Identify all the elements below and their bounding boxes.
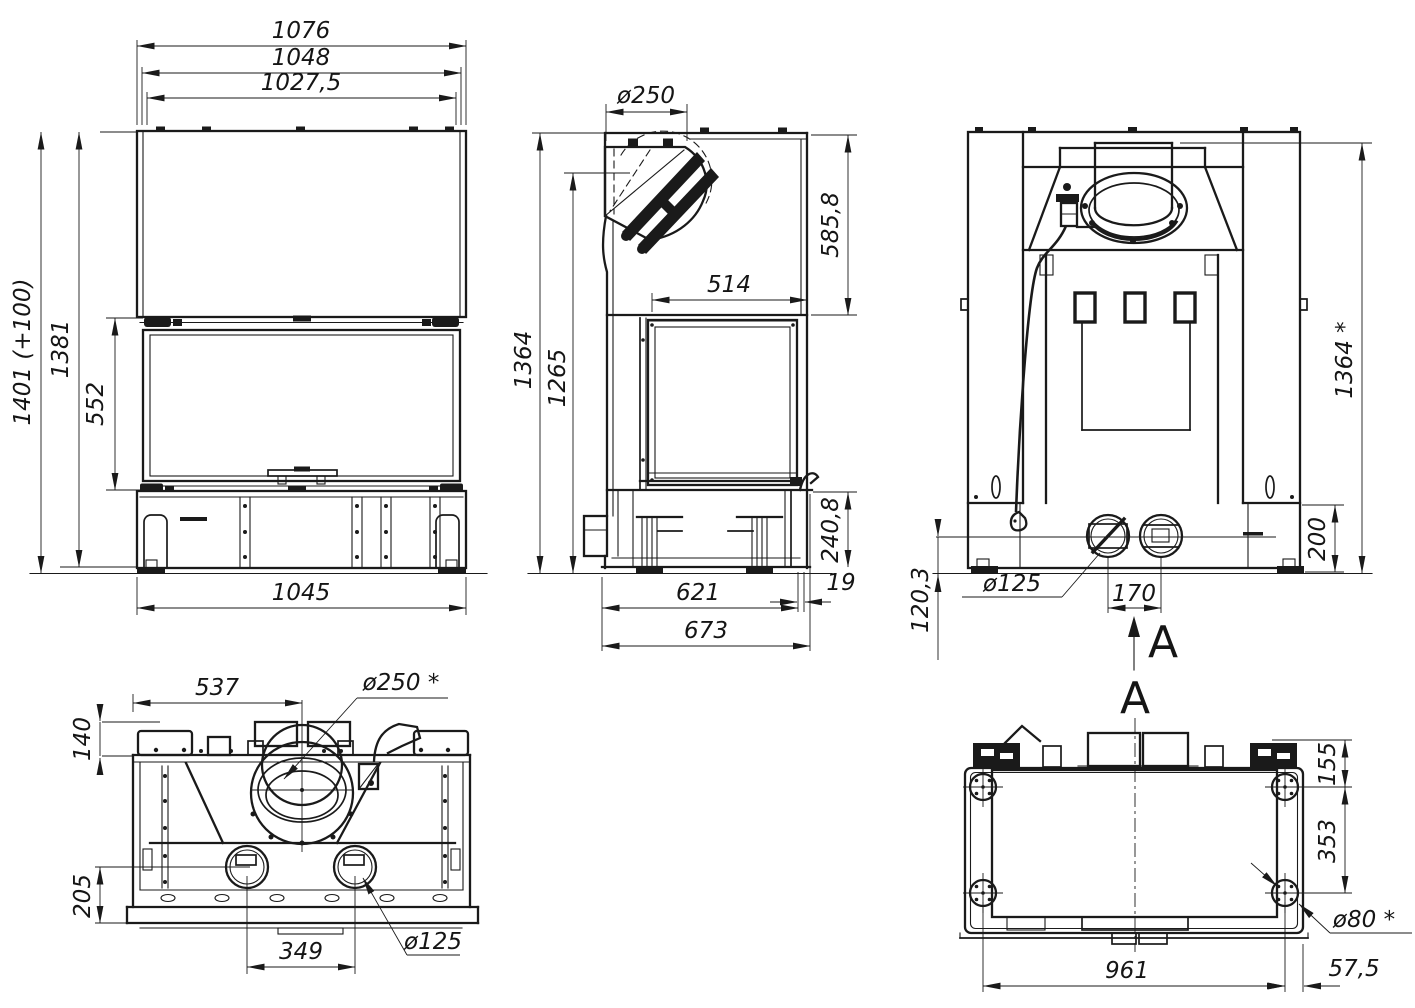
front-base (137, 491, 466, 573)
dim-side-hood-height: 585,8 (818, 192, 844, 258)
top-inner-structure (143, 763, 460, 888)
rear-inner-structure (1040, 255, 1218, 503)
dim-top-intake-spacing: 349 (279, 939, 323, 965)
front-door-handle (140, 467, 463, 492)
dim-bottom-foot-side-offset: 57,5 (1328, 956, 1379, 982)
dim-side-front-height: 1265 (545, 349, 571, 408)
dim-top-front-ledge: 205 (70, 874, 96, 918)
dim-top-rear-ledge: 140 (70, 717, 96, 761)
dim-side-plinth-height: 240,8 (818, 497, 844, 563)
section-letter-view: A (1120, 673, 1150, 724)
rear-dimensions: 1364 * 200 ø125 170 120,3 (908, 143, 1372, 660)
dim-bottom-foot-diameter: ø80 * (1332, 907, 1395, 933)
dim-front-door-height: 552 (83, 382, 109, 426)
dim-front-base-width: 1045 (272, 580, 331, 606)
dim-bottom-foot-front-offset: 155 (1315, 742, 1341, 786)
top-outline (133, 722, 470, 907)
bottom-view: 155 353 ø80 * 961 57,5 (960, 718, 1412, 992)
dim-bottom-foot-depth-spacing: 353 (1315, 819, 1341, 863)
front-view: 1076 1048 1027,5 1401 (+100) 1381 552 10… (10, 18, 487, 615)
side-base (602, 473, 818, 573)
top-damper-latch (359, 724, 420, 789)
dim-rear-intake-diameter: ø125 (982, 571, 1041, 597)
dim-top-flue-center-offset: 537 (195, 675, 239, 701)
dim-rear-total-height: 1364 * (1332, 321, 1358, 398)
side-firebox (607, 315, 807, 490)
front-casing (137, 127, 466, 318)
bottom-outline (960, 726, 1308, 944)
dim-front-overall-width: 1076 (272, 18, 331, 44)
dim-side-base-depth: 621 (676, 580, 720, 606)
dim-front-casing-width: 1048 (272, 45, 331, 71)
dim-front-total-height: 1401 (+100) (10, 279, 36, 426)
dim-rear-intake-axis-height: 120,3 (908, 567, 934, 633)
dim-bottom-foot-width-spacing: 961 (1105, 958, 1149, 984)
dim-rear-intake-spacing: 170 (1112, 581, 1156, 607)
drawing-sheet: 1076 1048 1027,5 1401 (+100) 1381 552 10… (0, 0, 1415, 1008)
dim-side-flue-diameter: ø250 (616, 83, 675, 109)
section-marker: A A (1120, 616, 1178, 724)
dim-side-overall-depth: 673 (684, 618, 728, 644)
dim-rear-plinth-height: 200 (1305, 517, 1331, 561)
top-front-band (127, 890, 478, 934)
rear-view: 1364 * 200 ø125 170 120,3 A A (908, 127, 1372, 724)
dim-top-intake-diameter: ø125 (403, 929, 462, 955)
rear-body-outline (961, 127, 1307, 573)
front-door-frame (140, 316, 463, 482)
dim-front-body-height: 1381 (48, 320, 74, 379)
side-view: ø250 585,8 514 1364 1265 240,8 19 621 67… (511, 83, 857, 651)
rear-intake-ports (936, 515, 1276, 557)
dim-side-total-height: 1364 (511, 331, 537, 390)
technical-drawing-canvas: 1076 1048 1027,5 1401 (+100) 1381 552 10… (0, 0, 1415, 1008)
dim-side-glass-depth: 514 (707, 272, 751, 298)
bottom-feet (963, 767, 1305, 913)
dim-top-flue-diameter: ø250 * (362, 670, 440, 696)
dim-front-opening-width: 1027,5 (261, 70, 341, 96)
dim-side-rear-lip: 19 (826, 570, 855, 596)
bottom-dimensions: 155 353 ø80 * 961 57,5 (983, 740, 1412, 992)
side-front-edge (584, 216, 613, 568)
top-view: 537 ø250 * 140 205 349 ø125 (70, 670, 478, 974)
section-letter-arrow: A (1148, 617, 1178, 668)
side-flue-hood (605, 131, 719, 254)
